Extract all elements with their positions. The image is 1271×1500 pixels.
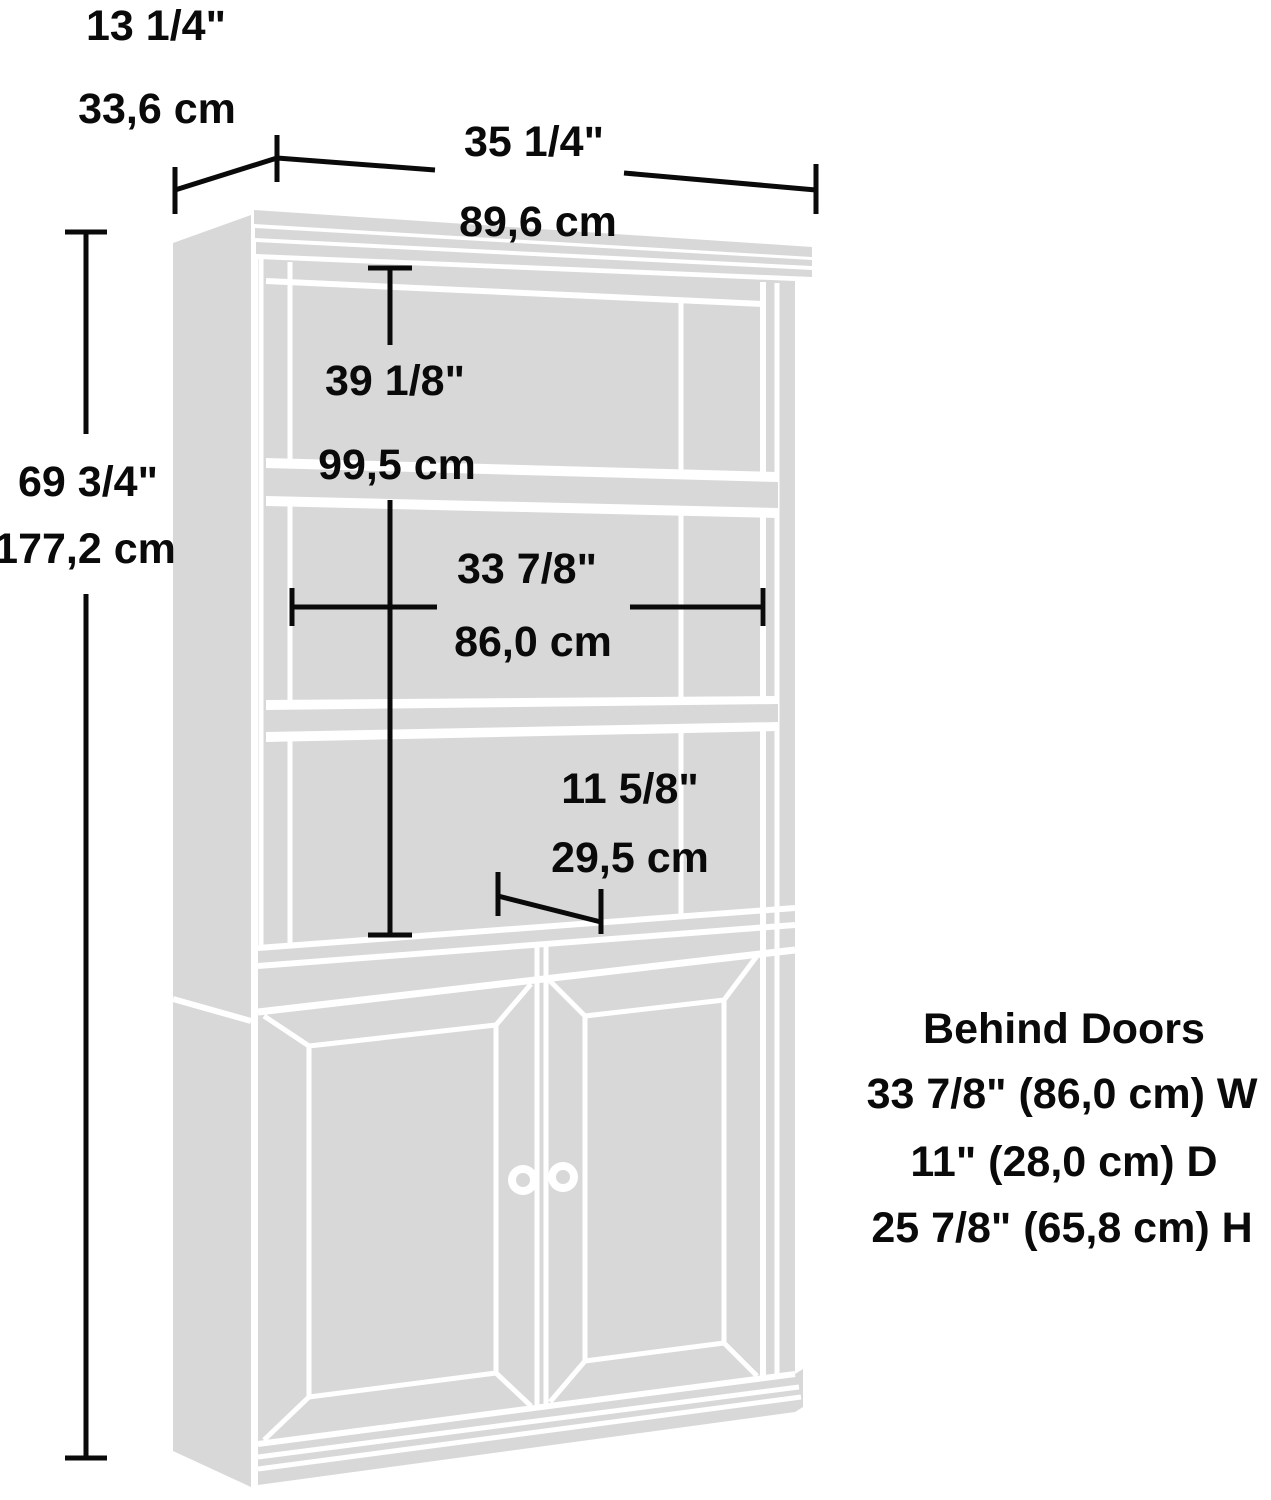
behind-doors-title: Behind Doors (923, 1005, 1205, 1053)
height-label-cm: 177,2 cm (0, 525, 176, 573)
height-dimension-line (65, 232, 107, 1458)
width-label-in: 35 1/4" (464, 118, 604, 166)
behind-doors-height: 25 7/8" (65,8 cm) H (871, 1204, 1252, 1252)
door-handle-right-icon (548, 1162, 578, 1192)
width-label-cm: 89,6 cm (459, 198, 617, 246)
behind-doors-width: 33 7/8" (86,0 cm) W (867, 1070, 1258, 1118)
depth-label-cm: 33,6 cm (78, 85, 236, 133)
behind-doors-depth: 11" (28,0 cm) D (910, 1138, 1217, 1186)
hutch-height-label-cm: 99,5 cm (318, 441, 476, 489)
height-label-in: 69 3/4" (18, 458, 158, 506)
shelf-depth-label-in: 11 5/8" (561, 765, 699, 813)
interior-width-label-in: 33 7/8" (457, 545, 597, 593)
depth-label-in: 13 1/4" (86, 2, 226, 50)
side-panel (173, 215, 251, 1487)
interior-width-label-cm: 86,0 cm (454, 618, 612, 666)
dimension-diagram: 13 1/4" 33,6 cm 35 1/4" 89,6 cm 69 3/4" … (0, 0, 1271, 1500)
base-molding-return (795, 1369, 803, 1412)
hutch-height-label-in: 39 1/8" (325, 357, 465, 405)
door-handle-left-icon (508, 1165, 538, 1195)
bookcase-drawing: 13 1/4" 33,6 cm 35 1/4" 89,6 cm 69 3/4" … (0, 0, 1271, 1500)
shelf-depth-label-cm: 29,5 cm (551, 834, 709, 882)
depth-dimension-line (175, 135, 277, 214)
behind-doors-specs: Behind Doors 33 7/8" (86,0 cm) W 11" (28… (867, 1005, 1258, 1252)
bookcase-body (173, 210, 812, 1487)
